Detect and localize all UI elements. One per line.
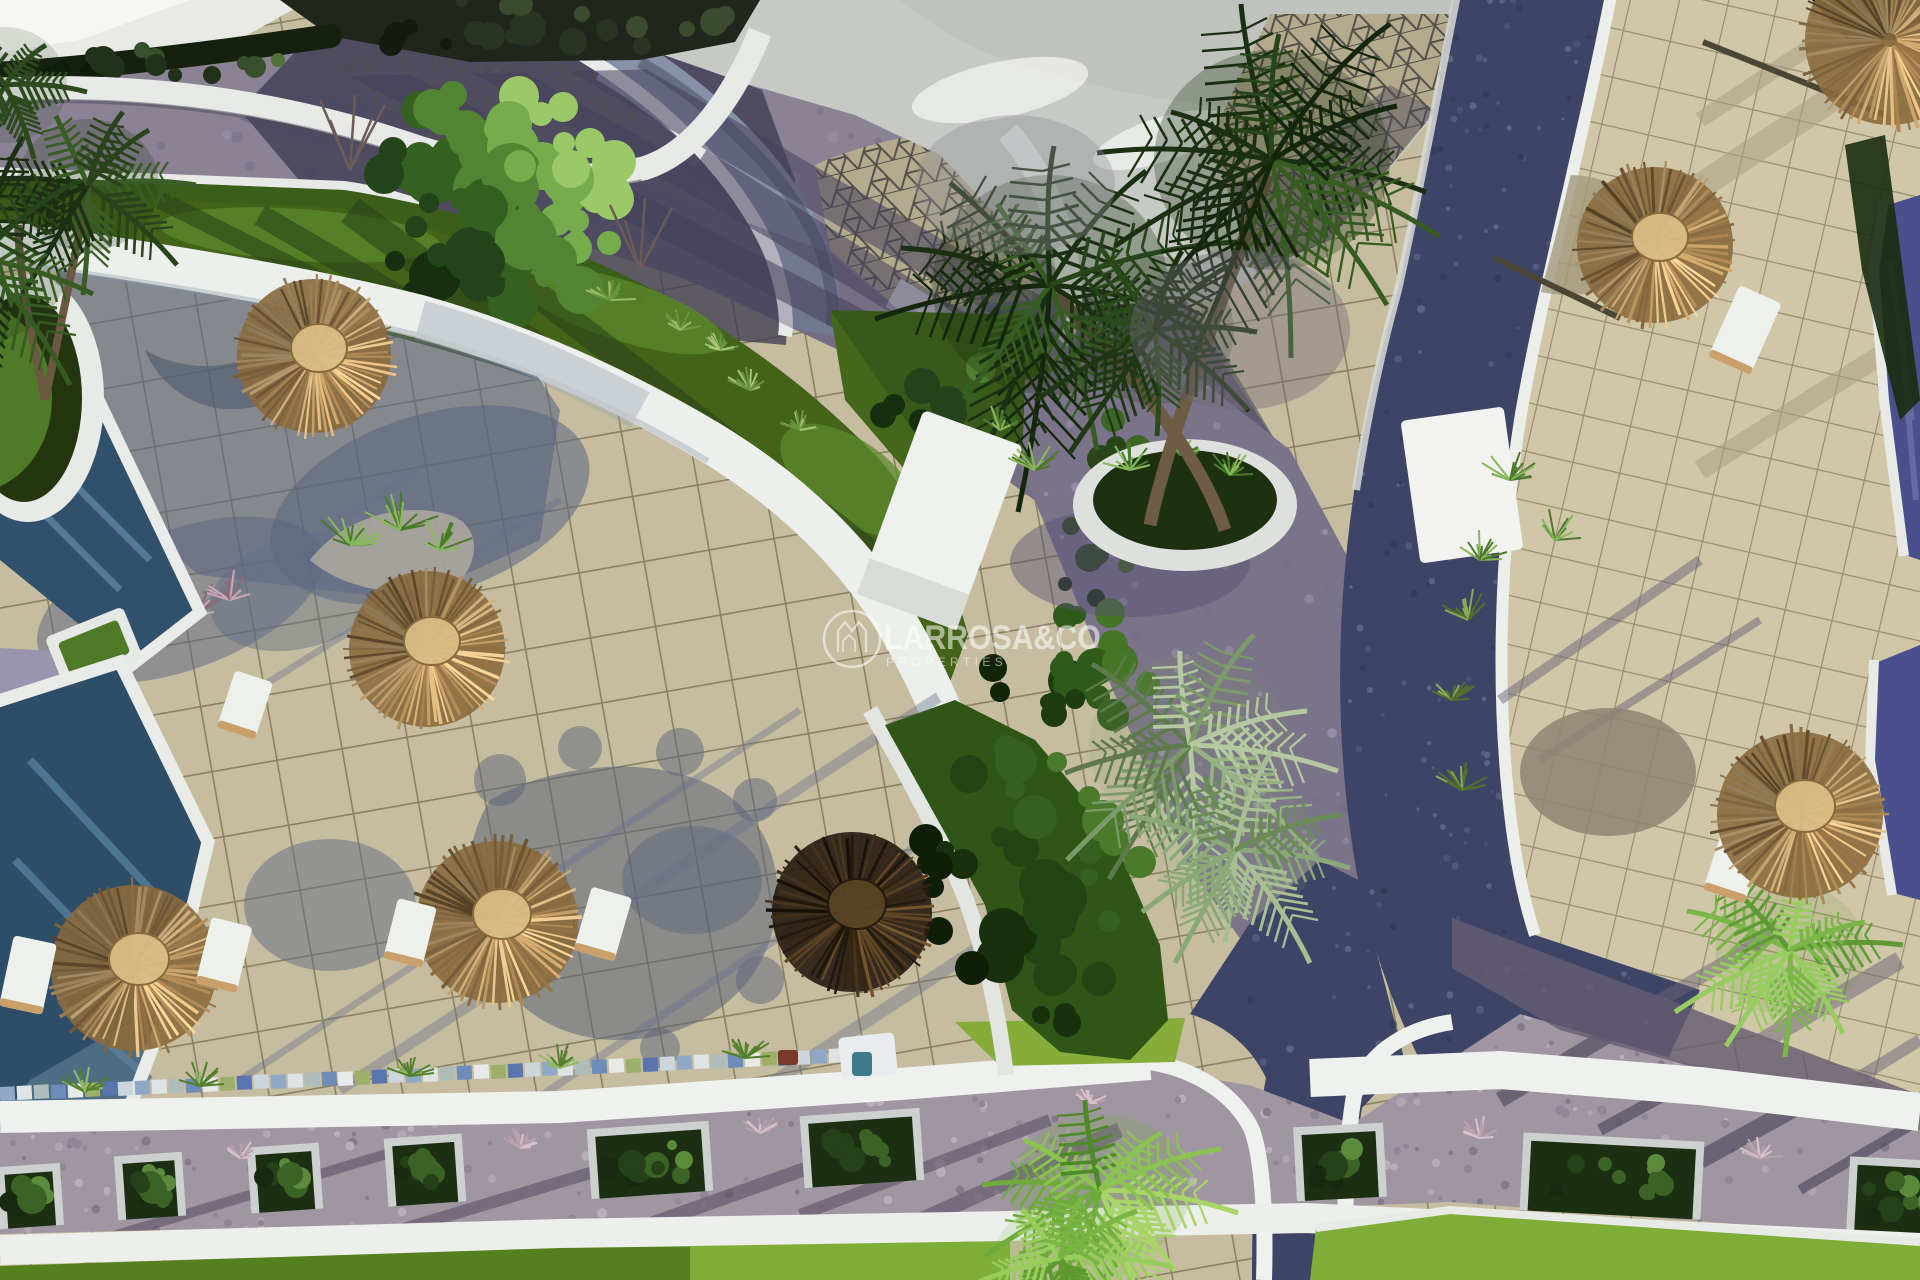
svg-text:PROPERTIES: PROPERTIES xyxy=(886,655,1007,669)
svg-text:LARROSA&CO: LARROSA&CO xyxy=(884,618,1101,656)
